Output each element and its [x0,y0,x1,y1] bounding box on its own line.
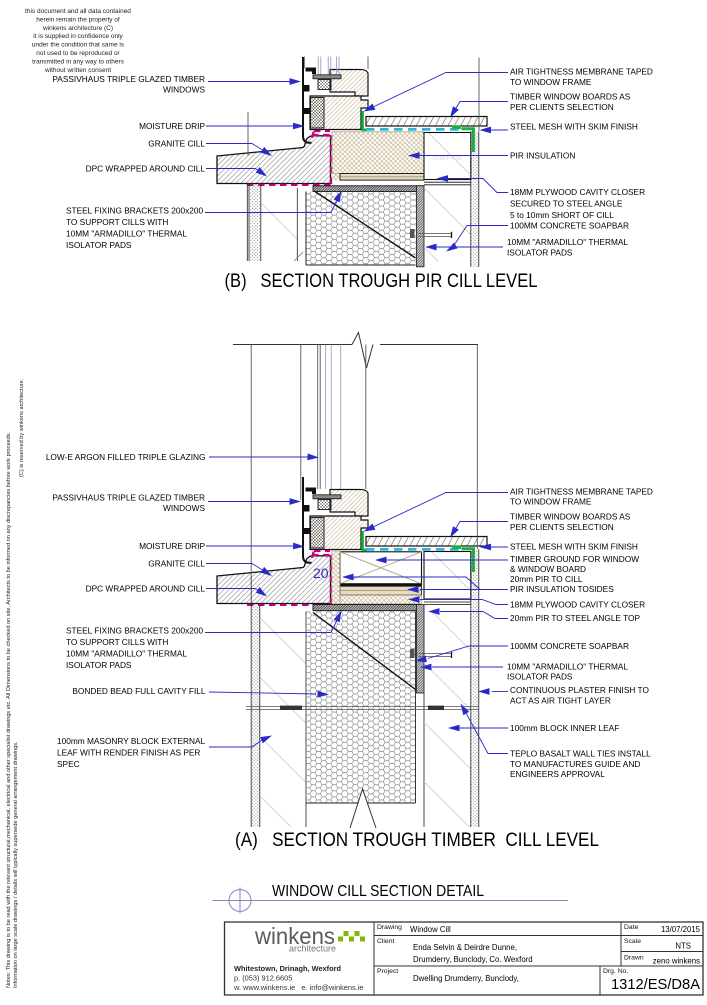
svg-text:DPC WRAPPED AROUND CILL: DPC WRAPPED AROUND CILL [86,584,206,594]
svg-text:PIR INSULATION: PIR INSULATION [510,151,575,161]
svg-text:Whitestown, Drinagh, Wexford: Whitestown, Drinagh, Wexford [234,964,342,973]
svg-text:MOISTURE DRIP: MOISTURE DRIP [139,121,205,131]
svg-text:(C) is reserved by winkens arc: (C) is reserved by winkens architecture. [19,378,25,477]
svg-text:LOW-E ARGON FILLED TRIPLE GLAZ: LOW-E ARGON FILLED TRIPLE GLAZING [46,452,206,462]
svg-text:GRANITE CILL: GRANITE CILL [148,139,205,149]
svg-text:100mm BLOCK INNER LEAF: 100mm BLOCK INNER LEAF [510,723,619,733]
svg-text:STEEL MESH WITH SKIM FINISH: STEEL MESH WITH SKIM FINISH [510,122,638,132]
svg-text:20: 20 [313,565,329,581]
svg-text:MOISTURE DRIP: MOISTURE DRIP [139,541,205,551]
svg-text:TIMBER WINDOW BOARDS ASPER CLI: TIMBER WINDOW BOARDS ASPER CLIENTS SELEC… [510,511,631,532]
svg-text:TIMBER WINDOW BOARDS ASPER CLI: TIMBER WINDOW BOARDS ASPER CLIENTS SELEC… [510,92,631,112]
svg-text:(A) SECTION TROUGH TIMBER C: (A) SECTION TROUGH TIMBER CILL LEVEL [235,830,599,851]
svg-text:Information on large scale dra: Information on large scale drawings / de… [13,741,19,988]
svg-text:BONDED BEAD FULL CAVITY FILL: BONDED BEAD FULL CAVITY FILL [72,686,205,696]
svg-text:GRANITE CILL: GRANITE CILL [148,559,205,569]
svg-text:(B) SECTION TROUGH PIR CILL: (B) SECTION TROUGH PIR CILL LEVEL [225,271,538,292]
svg-text:1312/ES/D8A: 1312/ES/D8A [611,977,700,993]
svg-text:this document and all data con: this document and all data containedhere… [25,8,131,74]
svg-text:w. www.winkens.ie e. info@wi: w. www.winkens.ie e. info@winkens.ie [233,983,364,992]
svg-text:18MM PLYWOOD CAVITY CLOSER: 18MM PLYWOOD CAVITY CLOSER [510,599,645,609]
svg-text:Notes: This drawing is to be r: Notes: This drawing is to be read with t… [6,431,12,988]
svg-text:p. (053) 912.6605: p. (053) 912.6605 [234,974,292,983]
svg-text:man-ms: man-ms [433,153,462,162]
svg-text:DPC WRAPPED AROUND CILL: DPC WRAPPED AROUND CILL [86,164,206,174]
svg-text:100MM CONCRETE SOAPBAR: 100MM CONCRETE SOAPBAR [510,641,629,651]
svg-text:STEEL MESH WITH SKIM FINISH: STEEL MESH WITH SKIM FINISH [510,542,638,552]
svg-text:architecture: architecture [289,944,336,954]
svg-text:WINDOW CILL SECTION DETAIL: WINDOW CILL SECTION DETAIL [272,883,484,900]
svg-text:20mm PIR TO STEEL ANGLE TOP: 20mm PIR TO STEEL ANGLE TOP [510,613,640,623]
svg-text:100MM CONCRETE SOAPBAR: 100MM CONCRETE SOAPBAR [510,221,629,231]
